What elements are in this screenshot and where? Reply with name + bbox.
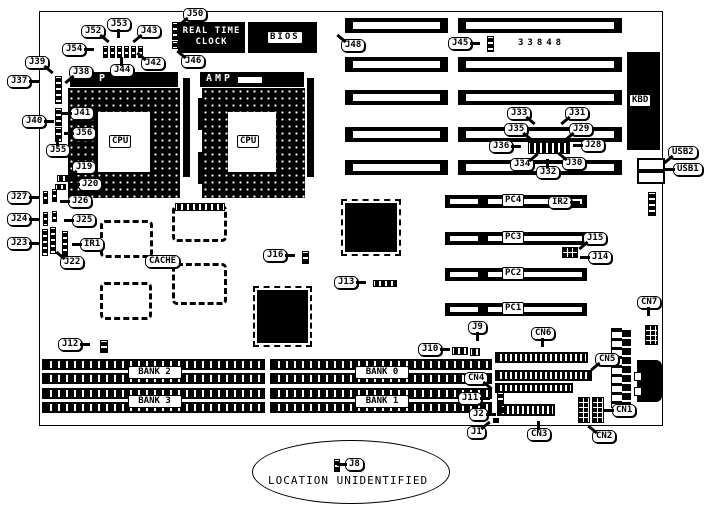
pci-slot-label: PC2 [502, 267, 524, 280]
callout-j20: J20 [78, 178, 102, 191]
connector-cn3 [497, 404, 555, 416]
jumper-j26 [52, 189, 57, 202]
callout-tail [480, 397, 490, 400]
callout-j39: J39 [25, 56, 49, 69]
callout-j29: J29 [569, 123, 593, 136]
cpu2-left-pins-a [198, 98, 202, 130]
ic-chip-6 [257, 290, 308, 343]
jumper-j40-j41 [55, 108, 62, 126]
jumper-j22 [50, 227, 56, 254]
location-unidentified-ellipse [252, 440, 450, 504]
jumper-row-1 [103, 46, 108, 58]
jumper-j11 [497, 392, 504, 405]
callout-cn4: CN4 [464, 372, 488, 385]
jumper-row-5 [131, 46, 136, 58]
callout-tail [470, 42, 480, 45]
cpu2-socket: CPU [202, 88, 305, 198]
callout-tail [84, 48, 94, 51]
callout-tail [541, 338, 544, 347]
callout-j30: J30 [562, 157, 586, 170]
callout-j41: J41 [70, 107, 94, 120]
callout-j34: J34 [510, 158, 534, 171]
cpu2-side-bar [307, 78, 314, 177]
callout-j42: J42 [141, 57, 165, 70]
pci-slot-pc3: PC3 [445, 232, 587, 245]
callout-cn6: CN6 [531, 327, 555, 340]
jumper-j16 [302, 251, 309, 264]
cache-chip-1 [100, 220, 153, 258]
callout-tail [665, 168, 675, 171]
callout-tail [29, 196, 39, 199]
callout-j35: J35 [504, 123, 528, 136]
callout-tail [60, 200, 70, 203]
callout-j22: J22 [60, 256, 84, 269]
power-connector-right [622, 328, 631, 406]
callout-j31: J31 [565, 107, 589, 120]
rtc-jumper-j46 [172, 41, 178, 49]
callout-j13: J13 [334, 276, 358, 289]
keyboard-din-connector [637, 360, 662, 402]
isa-slot-9 [345, 160, 448, 175]
callout-usb1: USB1 [673, 163, 703, 176]
jumper-j37-j38 [55, 76, 62, 104]
usb2-connector [637, 158, 665, 171]
isa-slot-2 [458, 18, 622, 33]
isa-slot-4 [458, 57, 622, 72]
callout-j55: J55 [46, 144, 70, 157]
cpu1-side-bar [183, 78, 190, 177]
connector-cn4 [495, 383, 573, 393]
din-notch [634, 387, 642, 396]
callout-cache: CACHE [145, 255, 180, 268]
callout-j25: J25 [72, 214, 96, 227]
callout-tail [573, 144, 583, 147]
callout-j10: J10 [418, 343, 442, 356]
bios-label: BIOS [267, 31, 303, 44]
jumper-j27 [43, 191, 48, 204]
cpu2-label: CPU [237, 135, 259, 148]
bar-below-cpu2 [175, 203, 225, 211]
callout-j38: J38 [69, 66, 93, 79]
callout-j19: J19 [72, 161, 96, 174]
bank-2-label: BANK 2 [128, 366, 182, 379]
cpu2-amp-window [238, 77, 262, 83]
callout-tail [29, 242, 39, 245]
jumper-j1 [493, 418, 499, 423]
callout-j50: J50 [183, 8, 207, 21]
isa-slot-stripe [353, 94, 440, 101]
cpu2-inner: CPU [228, 112, 276, 172]
callout-tail [647, 307, 650, 316]
callout-tail [44, 120, 54, 123]
isa-slot-1 [345, 18, 448, 33]
callout-j44: J44 [110, 64, 134, 77]
callout-tail [29, 80, 39, 83]
jumper-j14-j15 [562, 247, 578, 258]
jumper-j45 [487, 36, 494, 52]
jumper-j24 [43, 212, 48, 226]
pci-slot-pc2: PC2 [445, 268, 587, 281]
cpu1-inner: CPU [98, 112, 150, 172]
part-number: 33848 [518, 38, 565, 48]
callout-j40: J40 [22, 115, 46, 128]
jumper-j25 [52, 211, 57, 222]
cpu1-label: CPU [109, 135, 131, 148]
bank-0-label: BANK 0 [355, 366, 409, 379]
jumper-ir2 [648, 192, 656, 216]
callout-j43: J43 [137, 25, 161, 38]
bios-block: BIOS [248, 22, 317, 53]
callout-j36: J36 [489, 140, 513, 153]
callout-tail [64, 132, 74, 135]
callout-j53: J53 [107, 18, 131, 31]
rtc-jumper-j50 [172, 22, 178, 40]
callout-tail [537, 421, 540, 430]
connector-cn2 [578, 397, 590, 423]
connector-cn7 [645, 325, 658, 345]
cpu2-amp-label: AMP [206, 72, 233, 86]
isa-slot-stripe [353, 22, 440, 29]
bank-1-label: BANK 1 [355, 395, 409, 408]
isa-slot-stripe [353, 61, 440, 68]
callout-j56: J56 [72, 127, 96, 140]
real-time-clock-block: REAL TIME CLOCK [178, 22, 245, 53]
isa-slot-3 [345, 57, 448, 72]
callout-j54: J54 [62, 43, 86, 56]
callout-tail [511, 145, 521, 148]
pci-slot-label: PC1 [502, 302, 524, 315]
callout-j37: J37 [7, 75, 31, 88]
kbd-block: KBD [627, 52, 660, 150]
callout-tail [72, 243, 82, 246]
cpu1-amp-label-visible: P [99, 72, 108, 86]
jumper-row-2 [110, 46, 115, 58]
pci-slot-stripe [450, 272, 478, 277]
cache-chip-4 [100, 282, 152, 320]
isa-slot-stripe [466, 61, 614, 68]
pci-slot-label: PC4 [502, 194, 524, 207]
isa-slot-stripe [353, 164, 440, 171]
pci-slot-pc1: PC1 [445, 303, 587, 316]
pci-slot-stripe [450, 307, 478, 312]
callout-j14: J14 [588, 251, 612, 264]
connector-cn6 [495, 352, 588, 363]
bank-3-label: BANK 3 [128, 395, 182, 408]
callout-j32: J32 [536, 166, 560, 179]
callout-j15: J15 [583, 232, 607, 245]
callout-cn3: CN3 [527, 428, 551, 441]
callout-tail [56, 137, 59, 146]
callout-usb2: USB2 [668, 146, 698, 159]
callout-tail [356, 281, 366, 284]
isa-slot-6 [458, 90, 622, 105]
din-notch [634, 372, 642, 381]
real-time-clock-label: REAL TIME CLOCK [178, 26, 245, 48]
ic-chip-5 [345, 203, 397, 252]
motherboard-diagram: REAL TIME CLOCK BIOS KBD 33848 P CPU AMP… [0, 0, 716, 507]
pci-slot-label: PC3 [502, 231, 524, 244]
callout-j33: J33 [507, 107, 531, 120]
callout-tail [285, 254, 295, 257]
pci-slot-stripe [450, 199, 478, 204]
usb1-connector [637, 171, 665, 184]
callout-tail [440, 348, 450, 351]
callout-j12: J12 [58, 338, 82, 351]
cache-chip-3 [172, 263, 227, 305]
cpu2-left-pins-b [198, 152, 202, 184]
callout-ir1: IR1 [80, 238, 104, 251]
location-unidentified-text: LOCATION UNIDENTIFIED [268, 474, 428, 487]
callout-tail [117, 29, 120, 38]
callout-tail [62, 112, 72, 115]
callout-j46: J46 [181, 55, 205, 68]
jumper-j13 [373, 280, 397, 287]
callout-cn1: CN1 [612, 404, 636, 417]
isa-slot-stripe [466, 22, 614, 29]
callout-tail [70, 183, 80, 186]
callout-ir2: IR2 [548, 196, 572, 209]
callout-tail [587, 425, 597, 434]
jumper-row-4 [124, 46, 129, 58]
jumper-ir1 [62, 231, 68, 256]
callout-cn7: CN7 [637, 296, 661, 309]
callout-tail [80, 343, 90, 346]
callout-tail [580, 256, 590, 259]
callout-tail [120, 57, 123, 66]
callout-j27: J27 [7, 191, 31, 204]
callout-j48: J48 [341, 39, 365, 52]
pci-slot-stripe [450, 236, 478, 241]
jumper-cluster-j28-j36 [528, 142, 570, 154]
callout-j8: J8 [345, 458, 364, 471]
callout-j52: J52 [81, 25, 105, 38]
isa-slot-5 [345, 90, 448, 105]
connector-cn1 [592, 397, 604, 423]
callout-cn5: CN5 [595, 353, 619, 366]
callout-j45: J45 [448, 37, 472, 50]
jumper-j10 [452, 347, 468, 355]
isa-slot-stripe [466, 94, 614, 101]
connector-cn5 [495, 370, 592, 381]
callout-tail [64, 219, 74, 222]
callout-j2: J2 [469, 408, 488, 421]
callout-j26: J26 [68, 195, 92, 208]
jumper-j9 [470, 348, 480, 356]
callout-j11: J11 [458, 392, 482, 405]
callout-j16: J16 [263, 249, 287, 262]
callout-tail [570, 201, 580, 204]
callout-j9: J9 [468, 321, 487, 334]
cpu2-amp-bar: AMP [200, 72, 304, 87]
jumper-j12 [100, 340, 108, 353]
isa-slot-stripe [353, 131, 440, 138]
jumper-j2 [499, 407, 505, 413]
callout-cn2: CN2 [592, 430, 616, 443]
callout-j1: J1 [467, 426, 486, 439]
kbd-label: KBD [629, 94, 651, 107]
callout-tail [546, 159, 549, 168]
jumper-j23 [42, 229, 48, 256]
isa-slot-7 [345, 127, 448, 142]
callout-tail [337, 463, 347, 466]
callout-j23: J23 [7, 237, 31, 250]
callout-tail [29, 218, 39, 221]
callout-tail [604, 409, 614, 412]
callout-j28: J28 [581, 139, 605, 152]
callout-j24: J24 [7, 213, 31, 226]
callout-tail [476, 332, 479, 341]
callout-tail [486, 413, 496, 416]
callout-tail [663, 155, 673, 164]
